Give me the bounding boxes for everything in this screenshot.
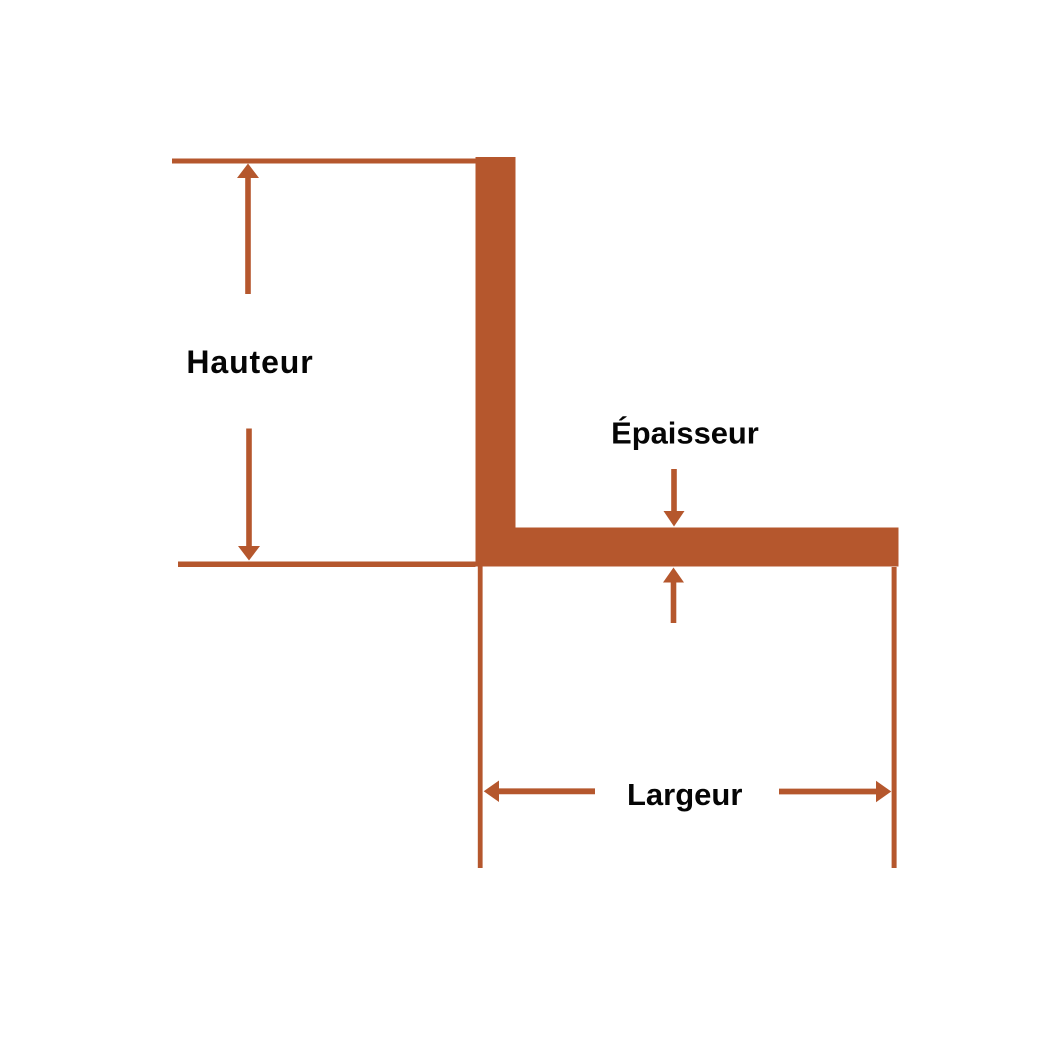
svg-text:Épaisseur: Épaisseur <box>611 416 759 451</box>
svg-text:Hauteur: Hauteur <box>186 344 313 380</box>
svg-text:Largeur: Largeur <box>627 777 742 812</box>
